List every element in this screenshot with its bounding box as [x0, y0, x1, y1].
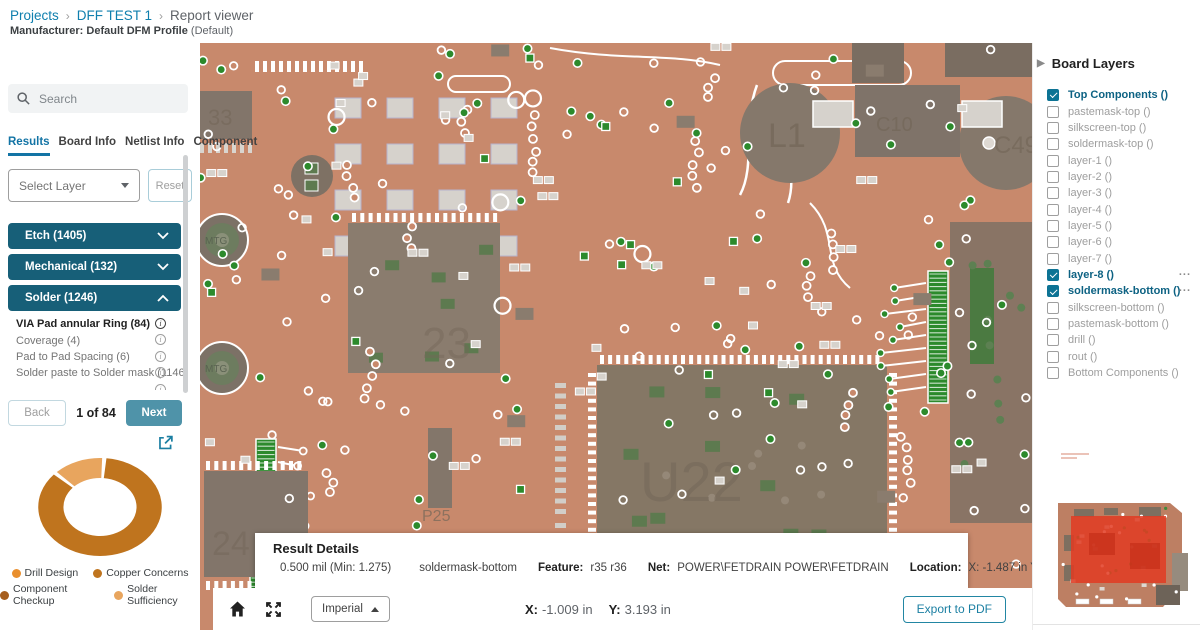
legend-item-component-checkup: Component Checkup — [0, 583, 99, 607]
checkbox[interactable] — [1047, 155, 1059, 167]
legend-row: Component CheckupSolder Sufficiency — [0, 583, 200, 607]
checkbox[interactable] — [1047, 187, 1059, 199]
checkbox[interactable] — [1047, 122, 1059, 134]
x-label: X: — [525, 602, 538, 617]
layer-label: layer-4 () — [1068, 204, 1112, 216]
net-value: POWER\FETDRAIN POWER\FETDRAIN — [677, 562, 888, 574]
checkbox[interactable] — [1047, 334, 1059, 346]
units-dropdown[interactable]: Imperial — [311, 596, 390, 622]
manufacturer-value: Default DFM Profile — [86, 25, 187, 37]
viewer-toolbar: Imperial X:-1.009 in Y:3.193 in Export t… — [213, 588, 1032, 630]
breadcrumb: Projects›DFF TEST 1›Report viewer — [10, 8, 253, 23]
checkbox[interactable] — [1047, 106, 1059, 118]
checkbox[interactable] — [1047, 236, 1059, 248]
net-label: Net: — [648, 562, 670, 574]
board-label-p25: P25 — [422, 508, 451, 525]
legend-dot — [0, 591, 9, 600]
feature-value: r35 r36 — [590, 562, 626, 574]
layer-row-layer-2[interactable]: layer-2 () — [1033, 169, 1200, 185]
legend-item-copper-concerns: Copper Concerns — [93, 567, 188, 579]
panel-divider — [1033, 624, 1200, 625]
open-external-icon[interactable] — [157, 434, 174, 451]
legend-label: Copper Concerns — [106, 567, 188, 579]
layer-row-layer-5[interactable]: layer-5 () — [1033, 218, 1200, 234]
layer-row-layer-1[interactable]: layer-1 () — [1033, 152, 1200, 168]
layer-row-layer-6[interactable]: layer-6 () — [1033, 234, 1200, 250]
board-label-mtg: MTG — [205, 236, 227, 247]
board-label-u22: U22 — [640, 450, 743, 513]
board-label-c10: C10 — [876, 114, 913, 136]
board-label-chip33: 33 — [208, 105, 232, 130]
board-viewport[interactable]: 3323L1C49C10U2224P25MTGMTG Result Detail… — [200, 43, 1032, 630]
result-item-solder-paste-to-solder-mask-1146[interactable]: Solder paste to Solder mask (1146)i — [0, 365, 200, 381]
chart-legend: Drill DesignCopper ConcernsComponent Che… — [0, 567, 200, 607]
result-item-label: Pad to Pad Spacing (6) — [16, 351, 130, 363]
layer-row-rout[interactable]: rout () — [1033, 349, 1200, 365]
y-label: Y: — [609, 602, 621, 617]
chevron-up-icon — [157, 294, 169, 302]
checkmark-icon — [1049, 287, 1056, 294]
checkmark-icon — [1049, 271, 1056, 278]
section-solder-1246[interactable]: Solder (1246) — [8, 285, 181, 311]
layer-row-soldermask-bottom[interactable]: soldermask-bottom ()... — [1033, 283, 1200, 299]
legend-label: Component Checkup — [13, 583, 99, 607]
minimap-image — [1044, 495, 1194, 622]
chevron-down-icon — [157, 232, 169, 240]
checkbox[interactable] — [1047, 138, 1059, 150]
tab-netlist-info[interactable]: Netlist Info — [125, 136, 184, 156]
legend-label: Drill Design — [25, 567, 79, 579]
legend-dot — [12, 569, 21, 578]
more-options[interactable]: ... — [1179, 266, 1191, 278]
legend-label: Solder Sufficiency — [127, 583, 200, 607]
checkbox[interactable] — [1047, 220, 1059, 232]
legend-dot — [114, 591, 123, 600]
layer-label: layer-1 () — [1068, 155, 1112, 167]
section-label: Etch (1405) — [25, 230, 86, 242]
result-item-pad-to-pad-spacing-6[interactable]: Pad to Pad Spacing (6)i — [0, 349, 200, 365]
export-pdf-button[interactable]: Export to PDF — [903, 596, 1006, 623]
sidebar-tabs: ResultsBoard InfoNetlist InfoComponent — [8, 136, 200, 156]
layer-label: layer-8 () — [1068, 269, 1114, 281]
breadcrumb-separator: › — [66, 9, 70, 23]
board-label-chip24: 24 — [212, 525, 250, 563]
more-options[interactable]: ... — [1179, 282, 1191, 294]
layer-label: layer-3 () — [1068, 187, 1112, 199]
breadcrumb-item-report-viewer: Report viewer — [170, 8, 253, 23]
layer-row-layer-8[interactable]: layer-8 ()... — [1033, 267, 1200, 283]
cursor-coordinates: X:-1.009 in Y:3.193 in — [525, 602, 671, 617]
checkbox[interactable] — [1047, 302, 1059, 314]
layer-row-soldermask-top[interactable]: soldermask-top () — [1033, 136, 1200, 152]
fit-view-button[interactable] — [262, 598, 285, 621]
board-label-mtg: MTG — [205, 364, 227, 375]
layer-label: drill () — [1068, 334, 1096, 346]
result-item-label: Coverage (4) — [16, 335, 80, 347]
layer-label: layer-5 () — [1068, 220, 1112, 232]
search-input[interactable] — [39, 92, 169, 106]
layer-row-drill[interactable]: drill () — [1033, 332, 1200, 348]
manufacturer-suffix: (Default) — [191, 25, 233, 37]
violation-layer: soldermask-bottom — [419, 562, 517, 574]
layer-label: layer-2 () — [1068, 171, 1112, 183]
legend-dot — [93, 569, 102, 578]
breadcrumb-separator: › — [159, 9, 163, 23]
x-value: -1.009 in — [542, 602, 593, 617]
chevron-down-icon — [121, 183, 129, 188]
layer-list: Top Components ()pastemask-top ()silkscr… — [1033, 87, 1200, 381]
legend-row: Drill DesignCopper Concerns — [0, 567, 200, 579]
pager-position: 1 of 84 — [76, 406, 116, 420]
home-icon — [227, 599, 248, 619]
layer-label: layer-7 () — [1068, 253, 1112, 265]
select-layer-value: Select Layer — [19, 179, 86, 193]
issues-donut-chart — [37, 457, 163, 557]
info-icon[interactable]: i — [155, 318, 166, 329]
layer-label: silkscreen-bottom () — [1068, 302, 1165, 314]
result-sections: Etch (1405)Mechanical (132)Solder (1246) — [0, 223, 200, 311]
layer-label: Bottom Components () — [1068, 367, 1179, 379]
location-value: X: -1.487 in Y: 3.8 in — [968, 562, 1032, 574]
info-icon[interactable]: i — [155, 334, 166, 345]
layer-row-layer-4[interactable]: layer-4 () — [1033, 201, 1200, 217]
layer-label: pastemask-top () — [1068, 106, 1151, 118]
select-layer-dropdown[interactable]: Select Layer — [8, 169, 140, 202]
expand-icon — [264, 600, 283, 619]
layer-label: soldermask-bottom () — [1068, 285, 1180, 297]
checkbox[interactable] — [1047, 171, 1059, 183]
result-item-label: VIA Pad annular Ring (84) — [16, 318, 150, 330]
result-details-panel: Result Details 0.500 mil (Min: 1.275) so… — [255, 533, 968, 589]
result-pager: Back 1 of 84 Next — [8, 400, 182, 426]
checkbox[interactable] — [1047, 89, 1059, 101]
checkmark-icon — [1049, 91, 1056, 98]
legend-item-drill-design: Drill Design — [12, 567, 79, 579]
breadcrumb-item-dff-test-1[interactable]: DFF TEST 1 — [77, 8, 152, 23]
search-box[interactable] — [8, 84, 188, 113]
app-header: Projects›DFF TEST 1›Report viewer Manufa… — [0, 0, 1200, 43]
minimap[interactable] — [1044, 495, 1194, 622]
layer-row-layer-7[interactable]: layer-7 () — [1033, 250, 1200, 266]
watermark-mark — [1061, 453, 1089, 461]
checkbox[interactable] — [1047, 367, 1059, 379]
sidebar-scrollbar[interactable] — [183, 155, 188, 393]
back-button[interactable]: Back — [8, 400, 66, 426]
units-value: Imperial — [322, 603, 363, 615]
layer-label: silkscreen-top () — [1068, 122, 1146, 134]
layer-row-bottom-components[interactable]: Bottom Components () — [1033, 365, 1200, 381]
board-layers-title: Board Layers — [1052, 56, 1135, 71]
layer-row-pastemask-bottom[interactable]: pastemask-bottom () — [1033, 316, 1200, 332]
y-value: 3.193 in — [625, 602, 671, 617]
breadcrumb-item-projects[interactable]: Projects — [10, 8, 59, 23]
layer-label: pastemask-bottom () — [1068, 318, 1169, 330]
home-button[interactable] — [225, 597, 250, 621]
board-label-c49: C49 — [994, 132, 1032, 159]
checkbox[interactable] — [1047, 253, 1059, 265]
manufacturer-line: Manufacturer: Default DFM Profile (Defau… — [10, 25, 233, 37]
checkbox[interactable] — [1047, 204, 1059, 216]
layer-row-pastemask-top[interactable]: pastemask-top () — [1033, 103, 1200, 119]
result-item-via-pad-annular-ring-84[interactable]: VIA Pad annular Ring (84)i — [0, 316, 200, 332]
next-button[interactable]: Next — [126, 400, 182, 426]
results-sidebar: ResultsBoard InfoNetlist InfoComponent S… — [0, 43, 200, 630]
checkbox[interactable] — [1047, 351, 1059, 363]
layer-row-layer-3[interactable]: layer-3 () — [1033, 185, 1200, 201]
tab-component[interactable]: Component — [193, 136, 257, 156]
result-item-clipped[interactable]: i — [0, 382, 200, 390]
section-label: Mechanical (132) — [25, 261, 117, 273]
result-item-coverage-4[interactable]: Coverage (4)i — [0, 332, 200, 348]
layer-label: soldermask-top () — [1068, 138, 1154, 150]
chevron-down-icon — [157, 263, 169, 271]
chevron-up-icon — [371, 607, 379, 612]
manufacturer-label: Manufacturer: — [10, 25, 83, 37]
checkbox[interactable] — [1047, 285, 1059, 297]
section-etch-1405[interactable]: Etch (1405) — [8, 223, 181, 249]
panel-collapse-icon[interactable]: ▶ — [1037, 58, 1045, 69]
layer-label: Top Components () — [1068, 89, 1168, 101]
checkbox[interactable] — [1047, 318, 1059, 330]
checkbox[interactable] — [1047, 269, 1059, 281]
section-label: Solder (1246) — [25, 292, 97, 304]
layer-label: rout () — [1068, 351, 1097, 363]
legend-item-solder-sufficiency: Solder Sufficiency — [114, 583, 200, 607]
feature-label: Feature: — [538, 562, 583, 574]
result-details-title: Result Details — [255, 533, 968, 560]
search-icon — [16, 91, 31, 106]
location-label: Location: — [910, 562, 962, 574]
layer-filter-row: Select Layer Reset — [8, 169, 192, 202]
board-layers-panel: ▶ Board Layers Top Components ()pastemas… — [1032, 43, 1200, 630]
violation-measurement: 0.500 mil (Min: 1.275) — [280, 562, 391, 574]
layer-row-silkscreen-bottom[interactable]: silkscreen-bottom () — [1033, 299, 1200, 315]
tab-board-info[interactable]: Board Info — [59, 136, 117, 156]
layer-label: layer-6 () — [1068, 236, 1112, 248]
layer-row-top-components[interactable]: Top Components () — [1033, 87, 1200, 103]
info-icon[interactable]: i — [155, 351, 166, 362]
board-label-l1: L1 — [768, 117, 806, 155]
info-icon[interactable]: i — [155, 384, 166, 390]
result-type-list: VIA Pad annular Ring (84)iCoverage (4)iP… — [0, 316, 200, 390]
layer-row-silkscreen-top[interactable]: silkscreen-top () — [1033, 120, 1200, 136]
section-mechanical-132[interactable]: Mechanical (132) — [8, 254, 181, 280]
tab-results[interactable]: Results — [8, 136, 50, 156]
